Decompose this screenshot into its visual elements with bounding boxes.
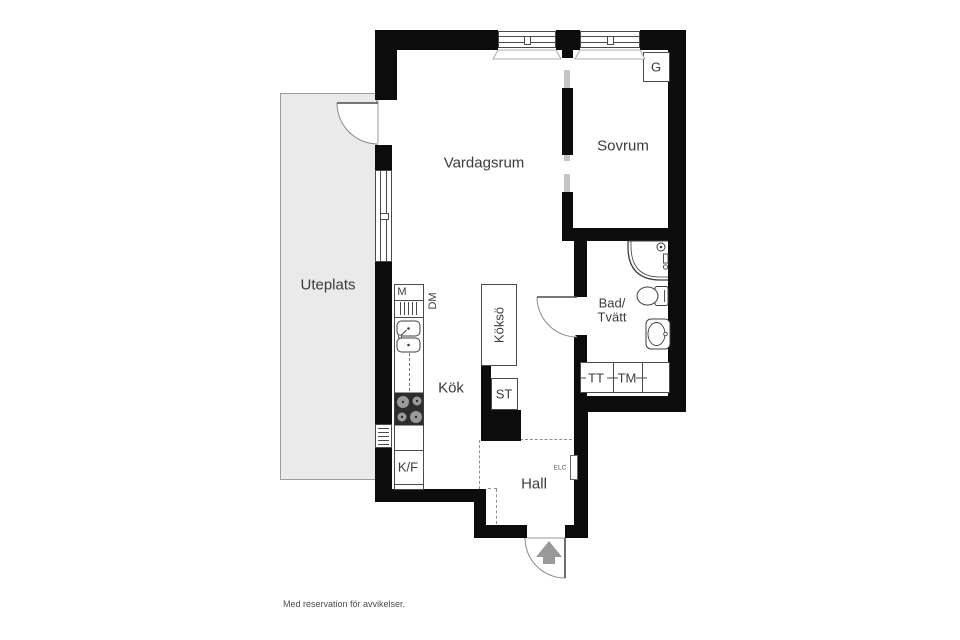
bathroom-label-line2: Tvätt bbox=[598, 310, 627, 325]
shower-control bbox=[663, 265, 667, 269]
dryer-label: TT bbox=[588, 371, 604, 386]
fridge-freezer-label: K/F bbox=[398, 460, 418, 475]
dishwasher-label: DM bbox=[427, 292, 439, 309]
patio-label: Uteplats bbox=[300, 277, 355, 294]
stove-burner-dot bbox=[401, 416, 403, 418]
kitchen-island-label: Köksö bbox=[492, 307, 507, 343]
window-sill bbox=[493, 50, 561, 59]
bedroom-label: Sovrum bbox=[597, 138, 649, 155]
sink-faucet-base bbox=[398, 335, 401, 338]
washbasin-faucet bbox=[664, 332, 668, 336]
living-room-label: Vardagsrum bbox=[444, 155, 525, 172]
washbasin-bowl bbox=[648, 323, 665, 346]
shower-head-dot bbox=[660, 246, 663, 249]
kitchen-label: Kök bbox=[438, 380, 464, 397]
disclaimer-text: Med reservation för avvikelser. bbox=[283, 599, 405, 609]
electrical-cabinet-label: ELC bbox=[554, 465, 567, 472]
fixtures-overlay bbox=[0, 0, 960, 640]
electrical-cabinet-panel bbox=[570, 455, 578, 480]
hall-label: Hall bbox=[521, 476, 547, 493]
microwave-label: M bbox=[397, 286, 406, 298]
shower-mixer bbox=[664, 254, 669, 263]
balcony-door-swing bbox=[337, 103, 378, 144]
toilet-bowl bbox=[637, 287, 658, 305]
stove-burner-dot bbox=[415, 416, 417, 418]
floor-plan: Vardagsrum Sovrum Uteplats Kök Hall Bad/… bbox=[0, 0, 960, 640]
window-sill bbox=[575, 50, 645, 59]
sink-drain bbox=[407, 344, 410, 347]
stove-burner-dot bbox=[416, 400, 418, 402]
wardrobe-label: G bbox=[651, 60, 661, 75]
stove-burner-dot bbox=[402, 401, 404, 403]
bathroom-door-arc bbox=[537, 297, 577, 337]
washing-machine-label: TM bbox=[618, 371, 637, 386]
cleaning-closet-label: ST bbox=[496, 387, 513, 402]
sink-drain bbox=[407, 327, 410, 330]
bathroom-label-line1: Bad/ bbox=[599, 296, 626, 311]
